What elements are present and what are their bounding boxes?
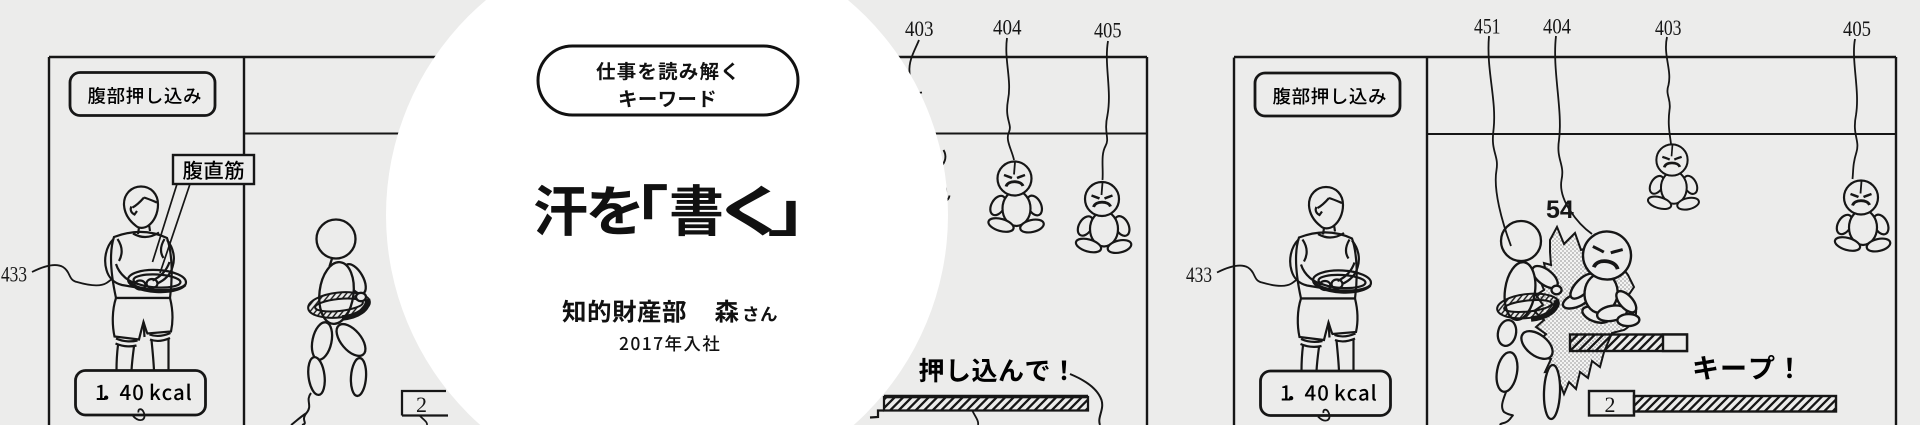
svg-text:405: 405 xyxy=(1843,16,1871,41)
svg-text:2: 2 xyxy=(1605,392,1616,417)
svg-text:403: 403 xyxy=(905,16,934,41)
svg-text:2: 2 xyxy=(416,392,427,417)
svg-text:433: 433 xyxy=(1186,262,1212,287)
svg-text:404: 404 xyxy=(1543,14,1571,39)
svg-text:404: 404 xyxy=(993,15,1022,40)
svg-text:433: 433 xyxy=(1,262,27,287)
svg-text:403: 403 xyxy=(1655,15,1682,40)
svg-text:451: 451 xyxy=(1474,14,1501,39)
svg-text:405: 405 xyxy=(1094,18,1122,43)
